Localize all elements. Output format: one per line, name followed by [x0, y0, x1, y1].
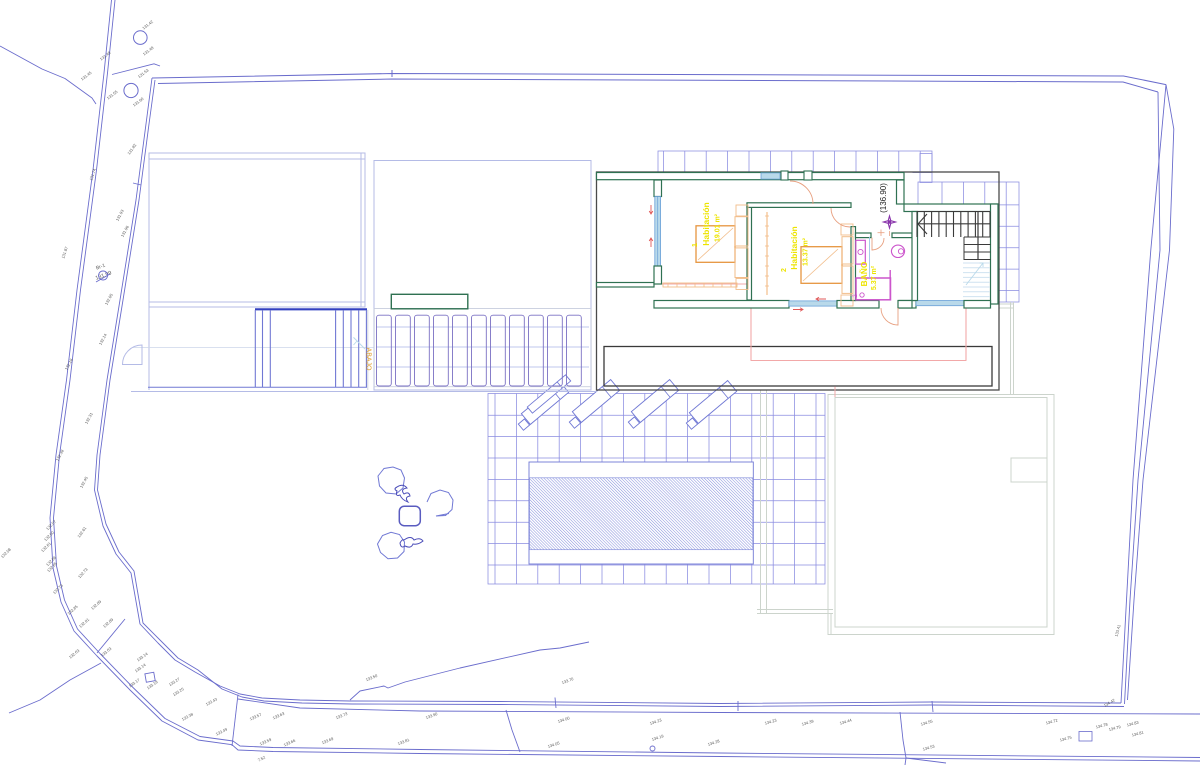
svg-text:13.37 m²: 13.37 m² — [803, 237, 810, 266]
svg-text:5.37 m²: 5.37 m² — [871, 265, 878, 290]
svg-text:Habitación: Habitación — [701, 202, 711, 245]
svg-text:Habitación: Habitación — [789, 226, 799, 269]
svg-text:ABAJO: ABAJO — [365, 348, 372, 372]
svg-text:(136.90): (136.90) — [879, 183, 888, 213]
svg-text:BAÑO: BAÑO — [859, 261, 869, 286]
svg-text:2: 2 — [781, 268, 788, 272]
svg-text:19.01 m²: 19.01 m² — [715, 213, 722, 242]
svg-text:1: 1 — [692, 243, 699, 247]
